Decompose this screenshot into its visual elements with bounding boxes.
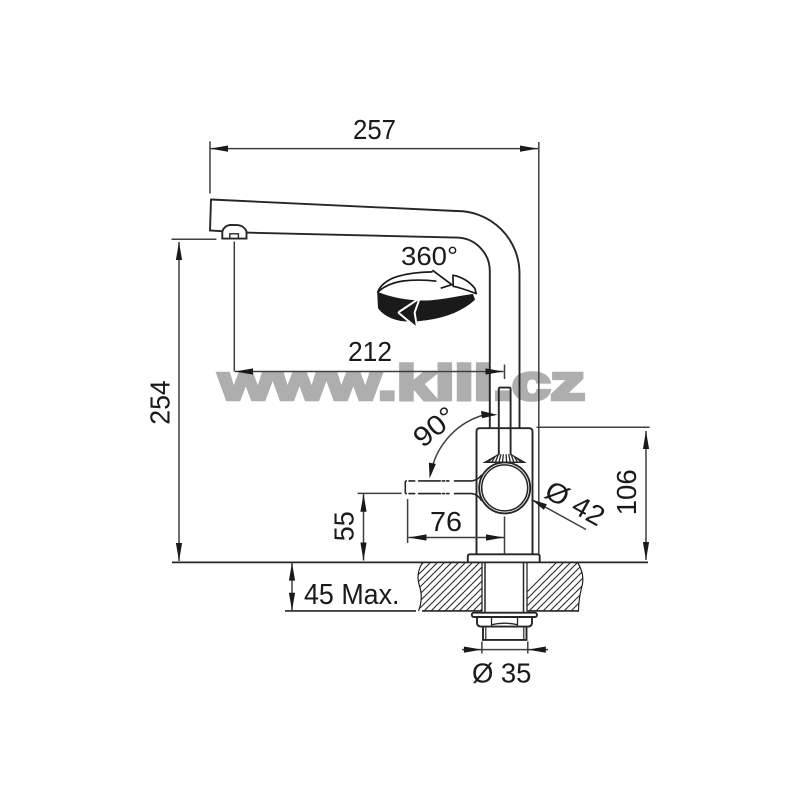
- svg-text:212: 212: [348, 336, 392, 367]
- svg-text:254: 254: [145, 380, 176, 425]
- svg-text:Ø 35: Ø 35: [472, 658, 532, 689]
- svg-text:76: 76: [430, 506, 462, 537]
- svg-text:106: 106: [611, 469, 642, 515]
- svg-text:www.kili.cz: www.kili.cz: [218, 357, 585, 411]
- svg-text:45 Max.: 45 Max.: [304, 579, 400, 611]
- svg-text:55: 55: [329, 511, 360, 541]
- svg-text:257: 257: [353, 114, 396, 145]
- svg-text:360°: 360°: [401, 241, 458, 271]
